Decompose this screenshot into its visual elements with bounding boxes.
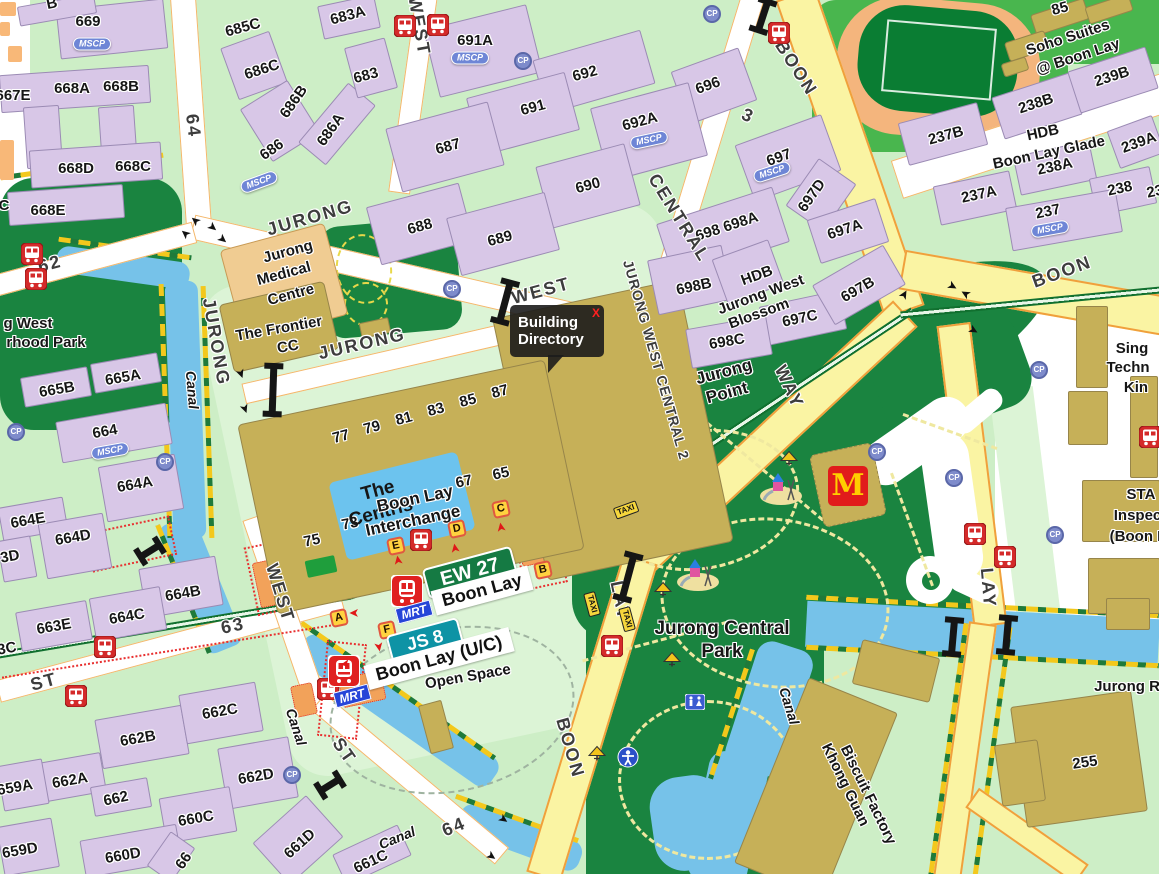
block-number-label: 255 [1072,753,1099,772]
bus-stop-letter[interactable]: B [533,560,553,580]
bus-stop-icon[interactable] [768,22,790,44]
block-number-label: C [0,198,9,214]
carpark-badge: CP [443,280,461,298]
road-name-label: LAY [977,567,999,609]
tooltip-pointer [548,355,564,373]
carpark-badge: CP [945,469,963,487]
carpark-badge: CP [1030,361,1048,379]
block-number-label: 3C [0,640,18,659]
bus-stop-icon[interactable] [427,14,449,36]
park-name-label: Jurong Central [654,619,789,639]
block-number-label: B [45,0,59,13]
overhead-bridge-icon [319,776,341,794]
map-shape [0,2,16,16]
map-shape [8,46,22,62]
bus-stop-icon[interactable] [394,15,416,37]
bus-stop-icon[interactable] [65,685,87,707]
place-name-label: Techn [1106,360,1149,376]
place-name-label: g West [4,316,53,332]
building-directory-tooltip: Building Directory X [510,305,604,357]
bus-stop-arrow-icon: ➤ [349,607,358,618]
place-name-label: Inspect [1114,508,1159,524]
street-directory-map[interactable]: B669685C683A686C683686B686A686667E668A66… [0,0,1159,874]
bus-stop-icon[interactable] [1139,426,1159,448]
place-name-label: STA [1127,487,1156,503]
shelter-icon [654,582,672,599]
map-shape [1068,391,1108,445]
block-number-label: 669 [75,14,100,30]
tooltip-line1: Building [518,314,578,331]
playground-icon [675,556,721,592]
park-name-label: Park [701,642,742,662]
bus-stop-icon[interactable] [94,636,116,658]
shelter-icon [588,746,606,763]
shelter-icon [780,451,798,468]
map-shape [1106,598,1150,630]
carpark-badge: CP [283,766,301,784]
carpark-badge: CP [703,5,721,23]
bus-stop-arrow-icon: ➤ [496,522,508,533]
bus-stop-arrow-icon: ➤ [372,642,384,653]
block-number-label: 668A [54,81,90,97]
block-number-label: 668B [103,79,139,95]
bus-stop-letter[interactable]: C [491,499,511,519]
block-number-label: 23 [1145,183,1159,202]
bus-stop-arrow-icon: ➤ [393,555,405,566]
place-name-label: Kin [1124,380,1148,396]
mscp-badge: MSCP [451,52,489,65]
map-shape [1076,306,1108,388]
bus-stop-letter[interactable]: E [386,536,406,556]
mscp-badge: MSCP [73,38,111,51]
road-name-label: 64 [182,113,204,139]
block-number-label: Jurong R [1094,679,1159,695]
toilet-icon [685,694,705,710]
bus-stop-letter[interactable]: A [329,608,349,628]
bus-stop-arrow-icon: ➤ [450,543,462,554]
mcdonalds-icon[interactable]: M [828,466,868,506]
tooltip-line2: Directory [518,331,584,348]
block-number-label: 65 [491,465,511,484]
block-number-label: 668E [30,203,65,219]
tooltip-close-icon[interactable]: X [592,306,600,320]
block-number-label: 667E [0,88,31,104]
bus-stop-icon[interactable] [21,243,43,265]
map-shape [38,513,113,580]
bus-stop-icon[interactable] [964,523,986,545]
bus-stop-icon[interactable] [994,546,1016,568]
place-name-label: rhood Park [6,335,85,351]
place-name-label: Sing [1116,341,1149,357]
playground-icon [758,470,804,506]
map-shape [881,19,997,100]
map-shape [0,22,10,36]
carpark-badge: CP [1046,526,1064,544]
place-name-label: (Boon L [1110,529,1159,545]
carpark-badge: CP [868,443,886,461]
canal-label: Canal [183,370,201,409]
bus-stop-letter[interactable]: D [447,519,467,539]
block-number-label: 67 [454,473,474,492]
block-number-label: 668C [115,159,151,175]
block-number-label: 3D [0,548,21,567]
bus-stop-icon[interactable] [410,529,432,551]
map-shape [0,140,14,180]
map-shape [994,739,1046,807]
mscp-badge: MSCP [239,169,279,194]
bus-stop-icon[interactable] [601,635,623,657]
map-shape [933,621,997,874]
road-name-label: ST [29,669,60,694]
road-name-label: 3 [739,105,758,127]
bus-stop-arrow-icon: ➤ [340,657,351,669]
carpark-badge: CP [514,52,532,70]
bus-stop-icon[interactable] [25,268,47,290]
place-name-label: CC [276,337,300,356]
block-number-label: 668D [58,161,94,177]
shelter-icon [663,652,681,669]
block-number-label: 691A [457,33,493,49]
fitness-corner-icon [617,746,639,768]
carpark-badge: CP [156,453,174,471]
block-number-label: 75 [302,532,322,551]
carpark-badge: CP [7,423,25,441]
